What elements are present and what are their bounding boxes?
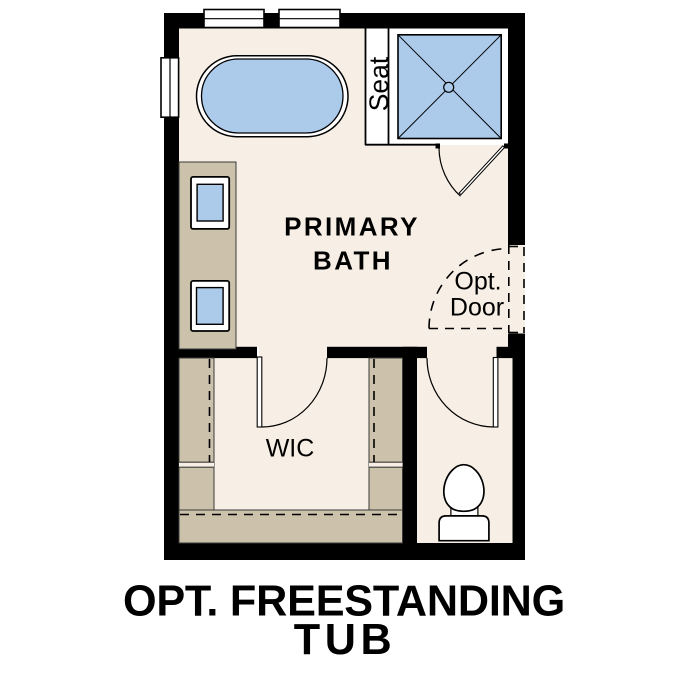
svg-text:Seat: Seat (364, 56, 394, 111)
svg-text:TUB: TUB (294, 616, 397, 664)
svg-text:WIC: WIC (266, 435, 315, 463)
svg-text:Opt.: Opt. (454, 268, 501, 296)
svg-text:BATH: BATH (313, 246, 393, 276)
svg-text:PRIMARY: PRIMARY (284, 212, 420, 242)
svg-text:Door: Door (450, 294, 504, 322)
